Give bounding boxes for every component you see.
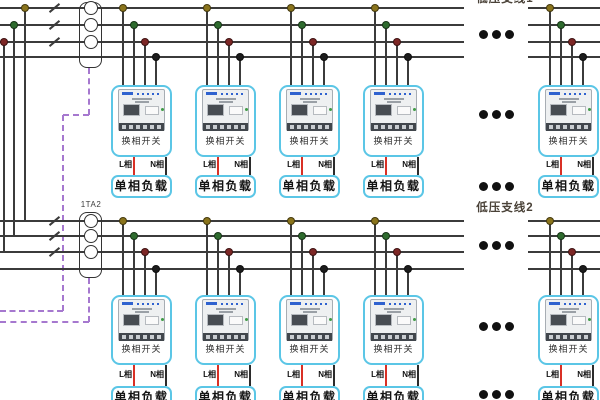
meter-brand-dot <box>579 93 581 95</box>
phase-tap-wire <box>560 236 562 295</box>
phase-tap-wire <box>290 8 292 85</box>
meter-terminal <box>227 125 231 129</box>
meter-terminal <box>388 335 392 339</box>
feeder-connector-wire <box>24 8 26 221</box>
meter-terminal <box>241 125 245 129</box>
meter-lcd <box>291 104 308 116</box>
phase-switch-label: 换相开关 <box>279 137 340 147</box>
meter-brand-dot <box>142 93 144 95</box>
meter-nameplate <box>145 106 159 115</box>
phase-tap-wire <box>301 25 303 85</box>
phase-tap-wire <box>144 252 146 295</box>
phase-switch-label: 换相开关 <box>363 137 424 147</box>
meter-terminal <box>227 335 231 339</box>
meter-brand-dot <box>584 93 586 95</box>
phase-tap-dot <box>298 232 306 240</box>
meter-model-text <box>132 98 152 100</box>
meter-nameplate <box>229 106 243 115</box>
meter-brand-dot <box>226 303 228 305</box>
phase-tap-wire <box>312 252 314 295</box>
bus-line-segment <box>0 7 464 9</box>
signal-cable-dashed <box>0 310 63 312</box>
phase-tap-dot <box>382 21 390 29</box>
meter-terminal <box>129 125 133 129</box>
meter-terminal <box>122 125 126 129</box>
meter-model-text <box>300 308 320 310</box>
meter-nameplate <box>229 316 243 325</box>
ellipsis-dot <box>492 390 501 399</box>
phase-tap-dot <box>382 232 390 240</box>
phase-tap-wire <box>206 8 208 85</box>
meter-terminal <box>570 335 574 339</box>
meter-terminal <box>206 125 210 129</box>
load-label: 单相负载 <box>196 391 255 400</box>
feeder-connector-wire <box>3 42 5 252</box>
meter-brand-dot <box>310 93 312 95</box>
l-phase-label: L相 <box>111 371 132 380</box>
phase-tap-wire <box>385 236 387 295</box>
meter-model-text <box>562 101 576 103</box>
meter-terminal <box>157 335 161 339</box>
meter-terminal <box>577 335 581 339</box>
phase-tap-dot <box>320 53 328 61</box>
phase-tap-wire <box>133 236 135 295</box>
l-phase-wire <box>133 365 135 386</box>
feeder-connector-wire <box>13 25 15 236</box>
l-phase-wire <box>385 365 387 386</box>
bus-line-segment <box>0 56 464 58</box>
phase-tap-dot <box>119 4 127 12</box>
meter-terminal <box>549 125 553 129</box>
meter-brand-dot <box>404 93 406 95</box>
meter-photo <box>545 89 592 131</box>
ellipsis-dot <box>505 110 514 119</box>
meter-brand-dot <box>404 303 406 305</box>
meter-brand-dot <box>564 93 566 95</box>
phase-tap-wire <box>374 8 376 85</box>
meter-nameplate <box>572 316 586 325</box>
meter-terminal <box>297 335 301 339</box>
meter-model-text <box>219 101 233 103</box>
meter-indicator-led <box>413 318 416 321</box>
meter-model-text <box>303 101 317 103</box>
meter-photo <box>545 299 592 341</box>
load-label: 单相负载 <box>196 180 255 193</box>
meter-photo <box>118 299 165 341</box>
meter-brand-logo <box>206 302 217 305</box>
ellipsis-dot <box>479 182 488 191</box>
phase-tap-wire <box>407 57 409 85</box>
meter-model-text <box>384 308 404 310</box>
meter-model-text <box>562 311 576 313</box>
phase-tap-dot <box>579 265 587 273</box>
meter-nameplate <box>313 316 327 325</box>
phase-tap-wire <box>290 221 292 295</box>
meter-lcd <box>123 104 140 116</box>
meter-terminal <box>325 125 329 129</box>
meter-terminal <box>136 125 140 129</box>
meter-brand-dot <box>394 303 396 305</box>
bus-line-segment <box>0 24 464 26</box>
phase-tap-dot <box>152 53 160 61</box>
meter-terminal <box>290 335 294 339</box>
ellipsis-dot <box>505 182 514 191</box>
meter-terminal <box>556 335 560 339</box>
ellipsis-dot <box>479 241 488 250</box>
n-phase-wire <box>165 157 167 175</box>
meter-brand-logo <box>122 92 133 95</box>
meter-terminal <box>402 335 406 339</box>
meter-lcd <box>123 314 140 326</box>
phase-tap-wire <box>217 236 219 295</box>
meter-terminal <box>150 335 154 339</box>
meter-photo <box>202 89 249 131</box>
phase-tap-wire <box>396 42 398 85</box>
l-phase-wire <box>560 365 562 386</box>
meter-brand-logo <box>374 302 385 305</box>
ellipsis-dot <box>479 322 488 331</box>
meter-terminal <box>143 335 147 339</box>
meter-terminal <box>549 335 553 339</box>
meter-model-text <box>300 98 320 100</box>
meter-lcd <box>550 314 567 326</box>
meter-photo <box>286 299 333 341</box>
meter-brand-dot <box>152 303 154 305</box>
meter-terminal <box>395 125 399 129</box>
meter-terminal <box>584 125 588 129</box>
meter-photo <box>202 299 249 341</box>
meter-terminal <box>584 335 588 339</box>
phase-tap-wire <box>385 25 387 85</box>
l-phase-label: L相 <box>279 161 300 170</box>
load-label: 单相负载 <box>112 391 171 400</box>
meter-brand-dot <box>241 303 243 305</box>
phase-tap-dot <box>568 248 576 256</box>
meter-indicator-led <box>245 318 248 321</box>
phase-tap-wire <box>571 42 573 85</box>
meter-model-text <box>559 308 579 310</box>
load-label: 单相负载 <box>280 391 339 400</box>
meter-terminal <box>304 335 308 339</box>
phase-switch-wiring-diagram: 换相开关L相N相单相负载换相开关L相N相单相负载换相开关L相N相单相负载换相开关… <box>0 0 600 400</box>
phase-tap-dot <box>214 21 222 29</box>
phase-tap-dot <box>236 53 244 61</box>
meter-terminal <box>297 125 301 129</box>
n-phase-label: N相 <box>305 161 332 170</box>
meter-terminal <box>374 125 378 129</box>
meter-brand-dot <box>137 303 139 305</box>
meter-terminal <box>318 335 322 339</box>
load-label: 单相负载 <box>280 180 339 193</box>
meter-terminal <box>304 125 308 129</box>
phase-tap-dot <box>371 217 379 225</box>
meter-terminal <box>577 125 581 129</box>
phase-tap-dot <box>214 232 222 240</box>
meter-model-text <box>387 311 401 313</box>
l-phase-wire <box>301 157 303 175</box>
phase-tap-dot <box>119 217 127 225</box>
n-phase-wire <box>592 365 594 386</box>
meter-terminal <box>290 125 294 129</box>
signal-cable-dashed <box>0 321 89 323</box>
meter-brand-dot <box>157 93 159 95</box>
meter-brand-dot <box>389 303 391 305</box>
phase-switch-label: 换相开关 <box>195 137 256 147</box>
meter-terminal <box>213 125 217 129</box>
meter-photo <box>370 299 417 341</box>
meter-brand-dot <box>569 303 571 305</box>
meter-brand-dot <box>325 93 327 95</box>
meter-brand-dot <box>157 303 159 305</box>
n-phase-wire <box>333 365 335 386</box>
meter-nameplate <box>313 106 327 115</box>
meter-indicator-led <box>588 108 591 111</box>
meter-brand-logo <box>122 302 133 305</box>
bus-line-segment <box>0 235 464 237</box>
meter-brand-dot <box>315 303 317 305</box>
meter-brand-dot <box>236 93 238 95</box>
meter-brand-logo <box>549 92 560 95</box>
ct-coil-circle <box>84 214 98 228</box>
ellipsis-dot <box>505 322 514 331</box>
meter-indicator-led <box>161 108 164 111</box>
meter-brand-logo <box>549 302 560 305</box>
l-phase-wire <box>217 365 219 386</box>
bus-line-segment <box>0 220 464 222</box>
phase-switch-label: 换相开关 <box>363 345 424 355</box>
ct-coil-circle <box>84 245 98 259</box>
phase-tap-dot <box>203 217 211 225</box>
phase-tap-wire <box>549 221 551 295</box>
meter-brand-dot <box>394 93 396 95</box>
n-phase-label: N相 <box>564 161 591 170</box>
meter-terminal <box>556 125 560 129</box>
phase-tap-wire <box>301 236 303 295</box>
meter-brand-logo <box>290 302 301 305</box>
l-phase-label: L相 <box>538 161 559 170</box>
n-phase-label: N相 <box>389 161 416 170</box>
meter-nameplate <box>572 106 586 115</box>
phase-tap-wire <box>571 252 573 295</box>
n-phase-wire <box>249 157 251 175</box>
n-phase-label: N相 <box>221 371 248 380</box>
meter-model-text <box>303 311 317 313</box>
phase-tap-dot <box>546 4 554 12</box>
phase-tap-dot <box>287 4 295 12</box>
ellipsis-dot <box>479 110 488 119</box>
phase-tap-dot <box>225 38 233 46</box>
meter-terminal <box>325 335 329 339</box>
n-phase-label: N相 <box>389 371 416 380</box>
n-phase-label: N相 <box>305 371 332 380</box>
phase-tap-dot <box>152 265 160 273</box>
meter-model-text <box>132 308 152 310</box>
bus-line-segment <box>528 268 600 270</box>
meter-terminal <box>563 125 567 129</box>
l-phase-label: L相 <box>538 371 559 380</box>
meter-indicator-led <box>161 318 164 321</box>
meter-photo <box>286 89 333 131</box>
l-phase-label: L相 <box>363 371 384 380</box>
meter-brand-dot <box>574 93 576 95</box>
phase-tap-wire <box>396 252 398 295</box>
n-phase-label: N相 <box>564 371 591 380</box>
meter-terminal <box>570 125 574 129</box>
feeder-connector-dot <box>0 38 8 46</box>
meter-lcd <box>375 314 392 326</box>
phase-tap-dot <box>141 248 149 256</box>
meter-model-text <box>219 311 233 313</box>
ellipsis-dot <box>505 390 514 399</box>
phase-tap-wire <box>239 57 241 85</box>
phase-tap-wire <box>312 42 314 85</box>
ct-coil-circle <box>84 18 98 32</box>
phase-tap-wire <box>560 25 562 85</box>
bus-line-segment <box>0 268 464 270</box>
bus-line-segment <box>528 220 600 222</box>
phase-tap-wire <box>228 252 230 295</box>
meter-brand-dot <box>226 93 228 95</box>
l-phase-label: L相 <box>363 161 384 170</box>
phase-tap-dot <box>557 21 565 29</box>
meter-brand-dot <box>305 303 307 305</box>
meter-brand-logo <box>374 92 385 95</box>
meter-indicator-led <box>413 108 416 111</box>
n-phase-label: N相 <box>137 161 164 170</box>
n-phase-wire <box>417 157 419 175</box>
meter-terminal <box>409 335 413 339</box>
signal-cable-dashed <box>62 115 64 311</box>
meter-brand-dot <box>409 93 411 95</box>
meter-model-text <box>387 101 401 103</box>
meter-brand-dot <box>147 93 149 95</box>
meter-brand-logo <box>290 92 301 95</box>
meter-indicator-led <box>245 108 248 111</box>
ct-coil-circle <box>84 229 98 243</box>
l-phase-label: L相 <box>279 371 300 380</box>
meter-brand-dot <box>221 93 223 95</box>
meter-brand-dot <box>231 303 233 305</box>
phase-switch-label: 换相开关 <box>111 345 172 355</box>
meter-terminal <box>388 125 392 129</box>
phase-tap-dot <box>546 217 554 225</box>
meter-brand-dot <box>584 303 586 305</box>
l-phase-label: L相 <box>195 161 216 170</box>
n-phase-wire <box>592 157 594 175</box>
meter-terminal <box>381 335 385 339</box>
meter-terminal <box>220 125 224 129</box>
ellipsis-dot <box>492 241 501 250</box>
branch-label-2: 低压支线2 <box>474 202 536 215</box>
meter-photo <box>370 89 417 131</box>
phase-tap-wire <box>155 57 157 85</box>
n-phase-wire <box>165 365 167 386</box>
l-phase-label: L相 <box>195 371 216 380</box>
feeder-connector-dot <box>21 4 29 12</box>
meter-photo <box>118 89 165 131</box>
meter-indicator-led <box>329 108 332 111</box>
meter-terminal <box>136 335 140 339</box>
l-phase-wire <box>133 157 135 175</box>
phase-tap-dot <box>404 53 412 61</box>
meter-model-text <box>384 98 404 100</box>
phase-tap-wire <box>122 221 124 295</box>
ellipsis-dot <box>492 110 501 119</box>
meter-brand-dot <box>564 303 566 305</box>
meter-terminal <box>234 335 238 339</box>
phase-tap-dot <box>309 248 317 256</box>
phase-tap-dot <box>309 38 317 46</box>
meter-brand-dot <box>310 303 312 305</box>
phase-tap-wire <box>549 8 551 85</box>
ellipsis-dot <box>505 30 514 39</box>
phase-tap-dot <box>141 38 149 46</box>
meter-terminal <box>122 335 126 339</box>
phase-switch-label: 换相开关 <box>538 137 599 147</box>
n-phase-label: N相 <box>221 161 248 170</box>
bus-line-segment <box>528 41 600 43</box>
load-label: 单相负载 <box>364 391 423 400</box>
bus-line-segment <box>528 251 600 253</box>
ellipsis-dot <box>505 241 514 250</box>
phase-tap-dot <box>320 265 328 273</box>
l-phase-wire <box>385 157 387 175</box>
ct-coil-circle <box>84 35 98 49</box>
signal-cable-dashed <box>63 114 89 116</box>
meter-brand-dot <box>142 303 144 305</box>
bus-line-segment <box>528 56 600 58</box>
meter-brand-dot <box>147 303 149 305</box>
ellipsis-dot <box>492 322 501 331</box>
meter-lcd <box>207 314 224 326</box>
ellipsis-dot <box>492 30 501 39</box>
phase-tap-dot <box>568 38 576 46</box>
meter-terminal <box>129 335 133 339</box>
phase-tap-dot <box>579 53 587 61</box>
meter-lcd <box>207 104 224 116</box>
phase-switch-label: 换相开关 <box>111 137 172 147</box>
phase-switch-label: 换相开关 <box>195 345 256 355</box>
meter-brand-dot <box>305 93 307 95</box>
meter-terminal <box>213 335 217 339</box>
meter-terminal <box>220 335 224 339</box>
meter-terminal <box>206 335 210 339</box>
load-label: 单相负载 <box>364 180 423 193</box>
meter-indicator-led <box>588 318 591 321</box>
ellipsis-dot <box>479 30 488 39</box>
meter-terminal <box>563 335 567 339</box>
phase-tap-dot <box>371 4 379 12</box>
ct-label: 1TA2 <box>78 201 104 210</box>
meter-brand-logo <box>206 92 217 95</box>
phase-tap-dot <box>393 38 401 46</box>
meter-model-text <box>216 308 236 310</box>
phase-tap-wire <box>323 57 325 85</box>
n-phase-label: N相 <box>137 371 164 380</box>
meter-model-text <box>216 98 236 100</box>
phase-tap-dot <box>225 248 233 256</box>
meter-brand-dot <box>579 303 581 305</box>
meter-brand-dot <box>574 303 576 305</box>
phase-tap-wire <box>217 25 219 85</box>
meter-terminal <box>311 125 315 129</box>
meter-brand-dot <box>221 303 223 305</box>
ellipsis-dot <box>492 182 501 191</box>
phase-tap-dot <box>236 265 244 273</box>
meter-brand-dot <box>569 93 571 95</box>
meter-terminal <box>241 335 245 339</box>
meter-terminal <box>150 125 154 129</box>
